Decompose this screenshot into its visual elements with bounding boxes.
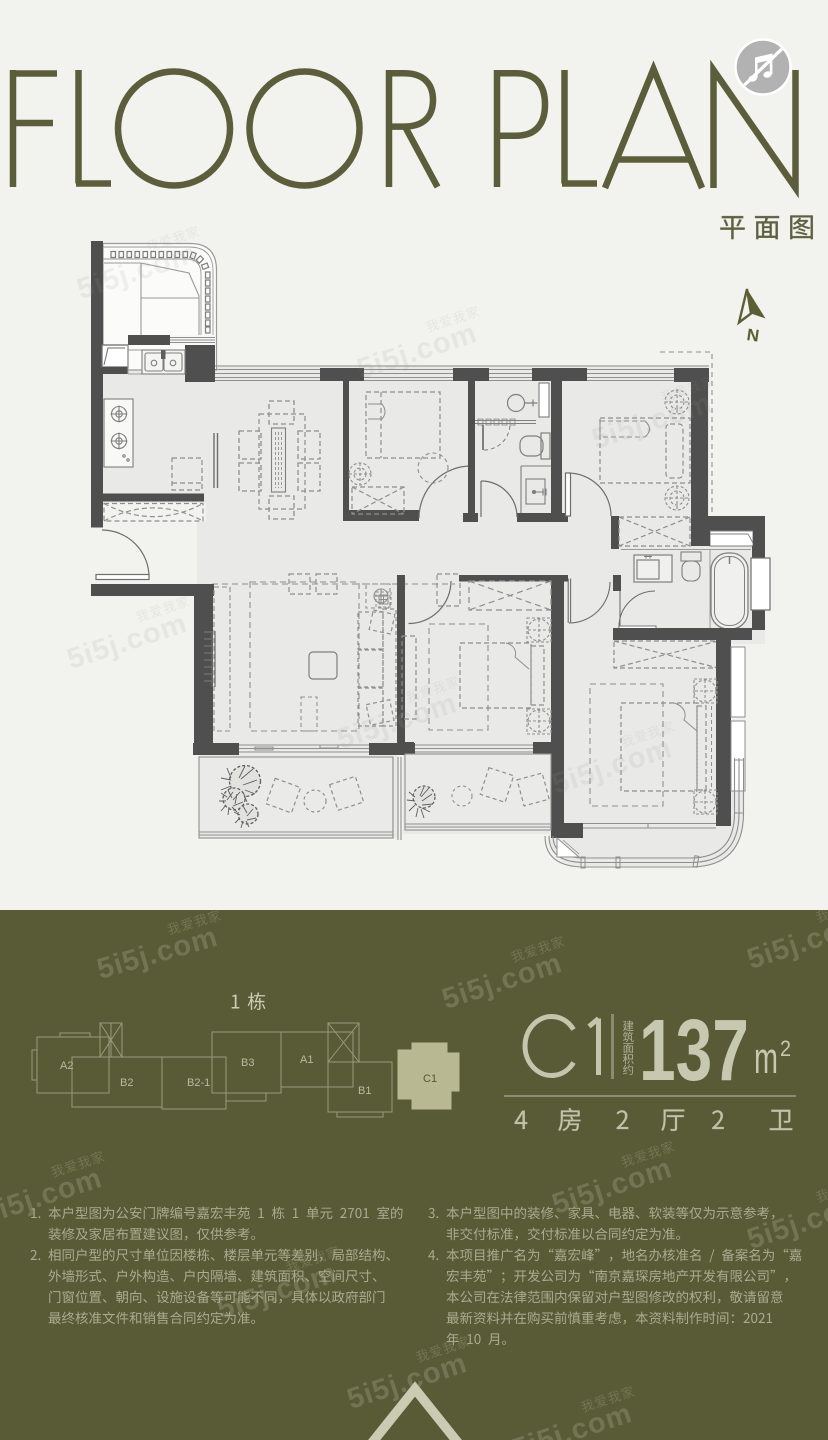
svg-text:m: m — [754, 1033, 778, 1083]
svg-text:B2-1: B2-1 — [187, 1077, 210, 1089]
svg-text:C1: C1 — [423, 1073, 437, 1085]
svg-text:B3: B3 — [241, 1057, 254, 1069]
svg-text:N: N — [746, 325, 761, 346]
svg-text:A2: A2 — [60, 1060, 73, 1072]
svg-text:B1: B1 — [358, 1085, 371, 1097]
svg-text:A1: A1 — [300, 1054, 313, 1066]
svg-text:137: 137 — [639, 1002, 749, 1099]
svg-text:2: 2 — [780, 1037, 791, 1061]
svg-text:B2: B2 — [120, 1077, 133, 1089]
